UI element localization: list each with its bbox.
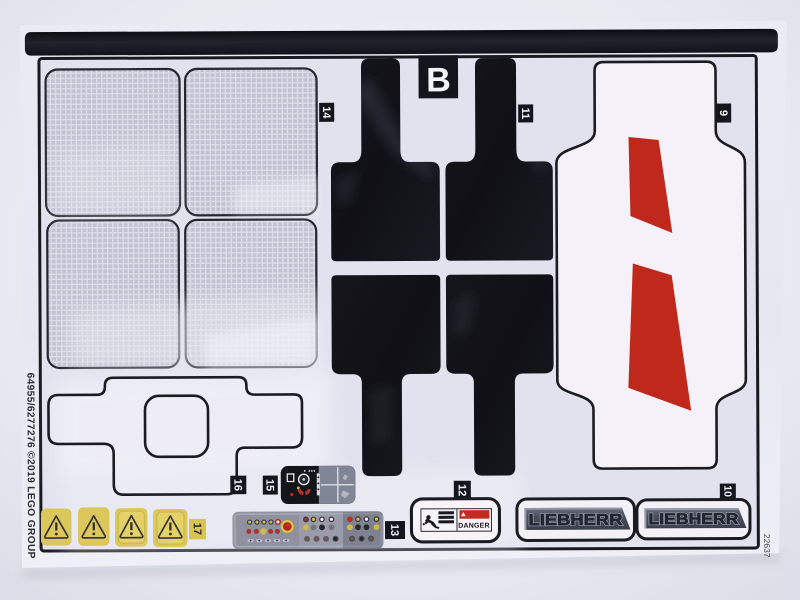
svg-text:15: 15 [263, 479, 275, 491]
svg-text:64955/6277276 ©2019 LEGO GROUP: 64955/6277276 ©2019 LEGO GROUP [24, 373, 36, 559]
svg-text:LIEBHERR: LIEBHERR [528, 512, 623, 529]
svg-text:LIEBHERR: LIEBHERR [648, 511, 738, 528]
svg-text:17: 17 [191, 523, 203, 535]
svg-text:12: 12 [456, 484, 468, 496]
svg-text:B: B [426, 61, 451, 99]
svg-text:14: 14 [320, 106, 332, 119]
svg-text:11: 11 [519, 108, 531, 120]
svg-text:10: 10 [721, 485, 733, 497]
svg-text:13: 13 [388, 524, 400, 536]
svg-text:DANGER: DANGER [458, 523, 490, 530]
svg-text:9: 9 [717, 110, 729, 116]
svg-text:22637: 22637 [762, 534, 772, 558]
svg-text:16: 16 [231, 479, 243, 491]
